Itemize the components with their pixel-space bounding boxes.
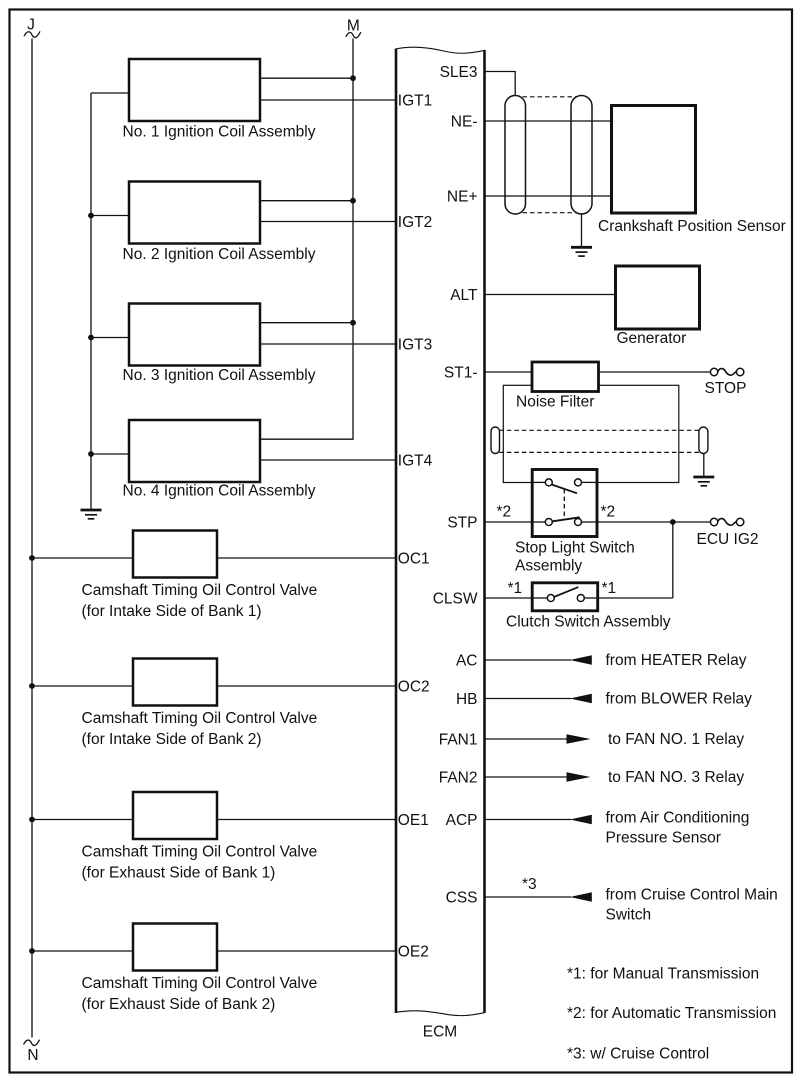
svg-text:NE-: NE- [451, 113, 478, 130]
svg-text:(for Exhaust Side of Bank 1): (for Exhaust Side of Bank 1) [82, 865, 276, 882]
svg-text:*3: *3 [522, 876, 537, 893]
svg-text:to FAN NO. 1 Relay: to FAN NO. 1 Relay [608, 731, 744, 748]
svg-text:(for Intake Side of Bank 1): (for Intake Side of Bank 1) [82, 603, 262, 620]
svg-text:IGT3: IGT3 [398, 336, 432, 353]
svg-text:No. 1 Ignition Coil Assembly: No. 1 Ignition Coil Assembly [123, 124, 316, 141]
svg-text:Switch: Switch [606, 906, 652, 923]
svg-text:HB: HB [456, 691, 478, 708]
svg-text:Generator: Generator [617, 330, 687, 347]
svg-text:from BLOWER Relay: from BLOWER Relay [606, 690, 753, 707]
svg-text:AC: AC [456, 652, 478, 669]
svg-text:*1: *1 [508, 580, 523, 597]
svg-text:*2: for Automatic Transmission: *2: for Automatic Transmission [567, 1005, 776, 1022]
svg-text:NE+: NE+ [447, 188, 478, 205]
svg-text:Camshaft Timing Oil Control Va: Camshaft Timing Oil Control Valve [82, 844, 318, 861]
svg-text:*3: w/ Cruise Control: *3: w/ Cruise Control [567, 1046, 709, 1063]
svg-text:Noise Filter: Noise Filter [516, 394, 594, 411]
svg-text:*2: *2 [601, 503, 616, 520]
svg-text:OC1: OC1 [398, 550, 430, 567]
svg-text:SLE3: SLE3 [440, 64, 478, 81]
svg-text:Camshaft Timing Oil Control Va: Camshaft Timing Oil Control Valve [82, 582, 318, 599]
svg-text:FAN2: FAN2 [439, 769, 478, 786]
svg-text:ECM: ECM [423, 1023, 457, 1040]
svg-text:Clutch Switch Assembly: Clutch Switch Assembly [506, 613, 671, 630]
svg-text:*1: for Manual Transmission: *1: for Manual Transmission [567, 966, 759, 983]
svg-text:*2: *2 [497, 503, 512, 520]
svg-text:(for Exhaust Side of Bank 2): (for Exhaust Side of Bank 2) [82, 996, 276, 1013]
svg-text:to FAN NO. 3 Relay: to FAN NO. 3 Relay [608, 769, 744, 786]
svg-text:FAN1: FAN1 [439, 731, 478, 748]
svg-text:Crankshaft Position Sensor: Crankshaft Position Sensor [598, 218, 786, 235]
svg-text:ST1-: ST1- [444, 364, 478, 381]
svg-text:No. 4 Ignition Coil Assembly: No. 4 Ignition Coil Assembly [123, 483, 316, 500]
svg-text:STOP: STOP [705, 380, 747, 397]
svg-text:No. 3 Ignition Coil Assembly: No. 3 Ignition Coil Assembly [123, 367, 316, 384]
svg-text:IGT2: IGT2 [398, 214, 432, 231]
svg-text:OE1: OE1 [398, 812, 429, 829]
svg-text:M: M [347, 18, 360, 35]
svg-text:STP: STP [447, 514, 477, 531]
svg-text:from Cruise Control Main: from Cruise Control Main [606, 886, 778, 903]
svg-text:ALT: ALT [450, 287, 478, 304]
svg-text:N: N [27, 1047, 38, 1064]
svg-text:*1: *1 [602, 580, 617, 597]
svg-text:CSS: CSS [446, 889, 478, 906]
svg-text:Stop Light Switch: Stop Light Switch [515, 540, 635, 557]
svg-text:Camshaft Timing Oil Control Va: Camshaft Timing Oil Control Valve [82, 975, 318, 992]
svg-text:J: J [27, 17, 35, 34]
svg-text:ACP: ACP [446, 812, 478, 829]
svg-text:CLSW: CLSW [433, 590, 478, 607]
svg-text:No. 2 Ignition Coil Assembly: No. 2 Ignition Coil Assembly [123, 246, 316, 263]
svg-text:from Air Conditioning: from Air Conditioning [606, 809, 750, 826]
svg-text:from HEATER Relay: from HEATER Relay [606, 652, 747, 669]
svg-text:OE2: OE2 [398, 943, 429, 960]
svg-text:Camshaft Timing Oil Control Va: Camshaft Timing Oil Control Valve [82, 710, 318, 727]
svg-text:OC2: OC2 [398, 678, 430, 695]
svg-text:ECU IG2: ECU IG2 [697, 531, 759, 548]
svg-text:IGT4: IGT4 [398, 452, 433, 469]
svg-text:(for Intake Side of Bank 2): (for Intake Side of Bank 2) [82, 731, 262, 748]
svg-text:IGT1: IGT1 [398, 92, 432, 109]
svg-text:Assembly: Assembly [515, 558, 582, 575]
svg-text:Pressure Sensor: Pressure Sensor [606, 829, 721, 846]
